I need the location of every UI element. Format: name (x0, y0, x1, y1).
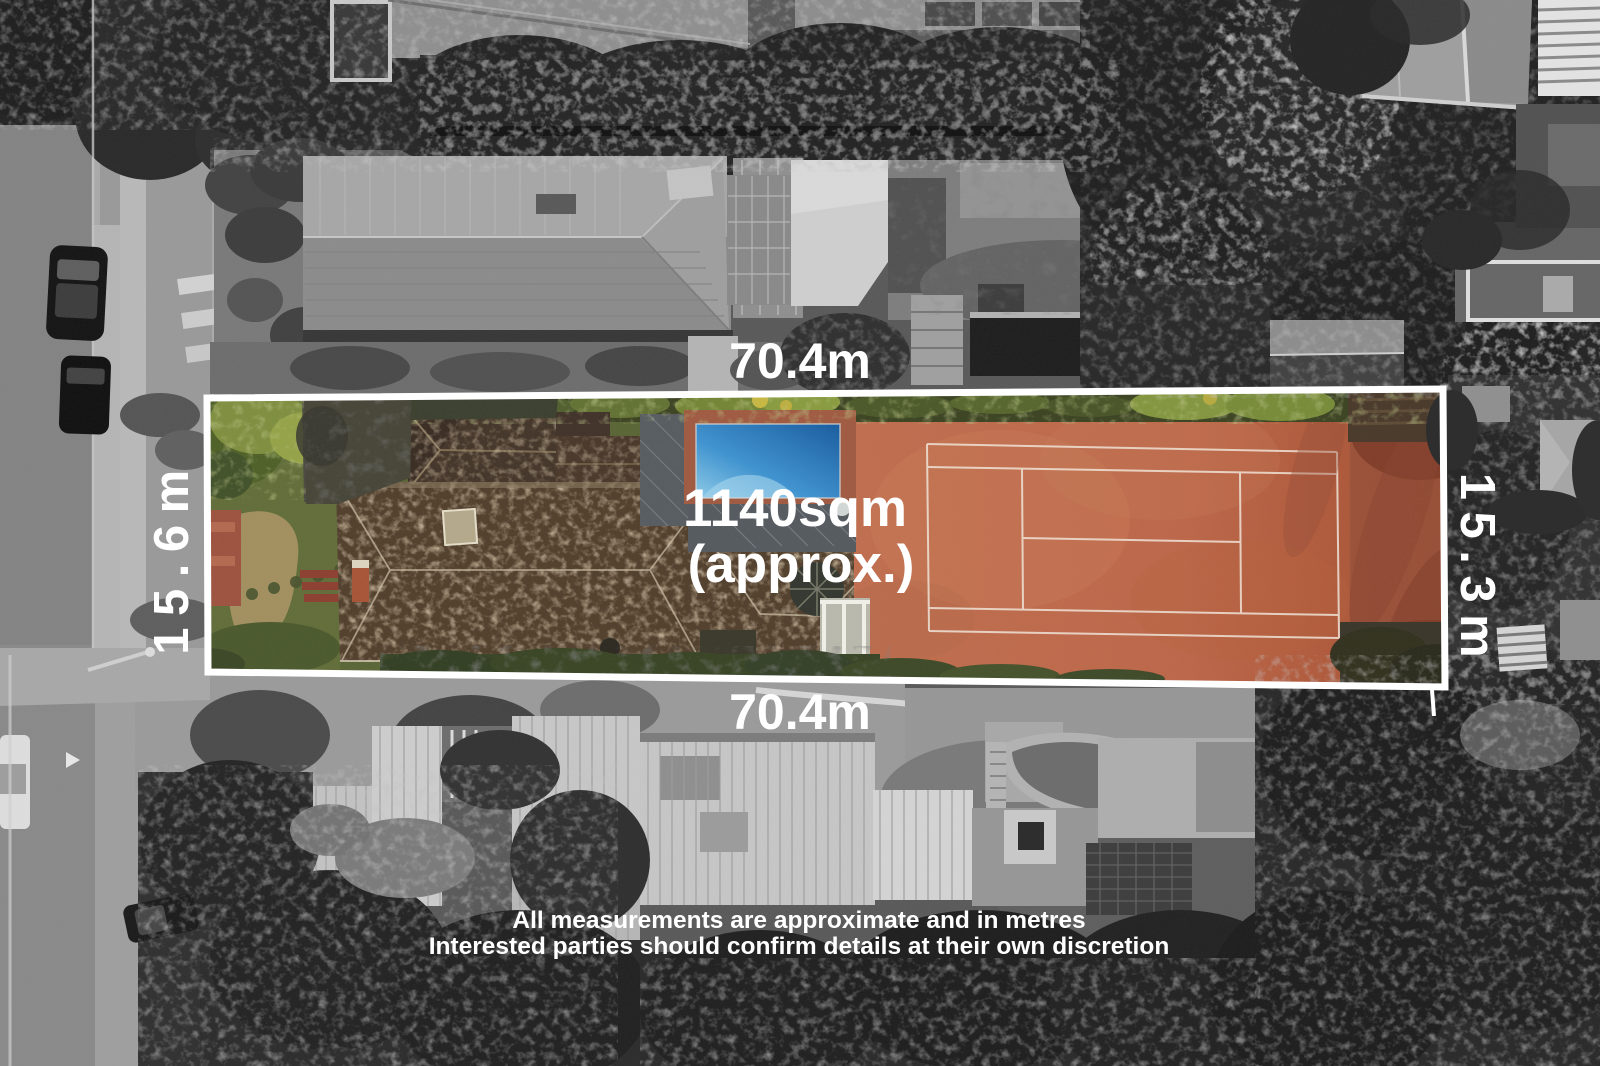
svg-text:70.4m: 70.4m (729, 684, 871, 740)
svg-text:All measurements are approxima: All measurements are approximate and in … (512, 907, 1085, 934)
svg-text:15.3m: 15.3m (1450, 473, 1504, 669)
svg-text:15.6m: 15.6m (145, 458, 199, 654)
svg-text:70.4m: 70.4m (729, 333, 871, 389)
svg-text:1140sqm: 1140sqm (683, 479, 907, 538)
svg-text:(approx.): (approx.) (688, 535, 915, 594)
svg-text:Interested parties should conf: Interested parties should confirm detail… (429, 933, 1170, 960)
